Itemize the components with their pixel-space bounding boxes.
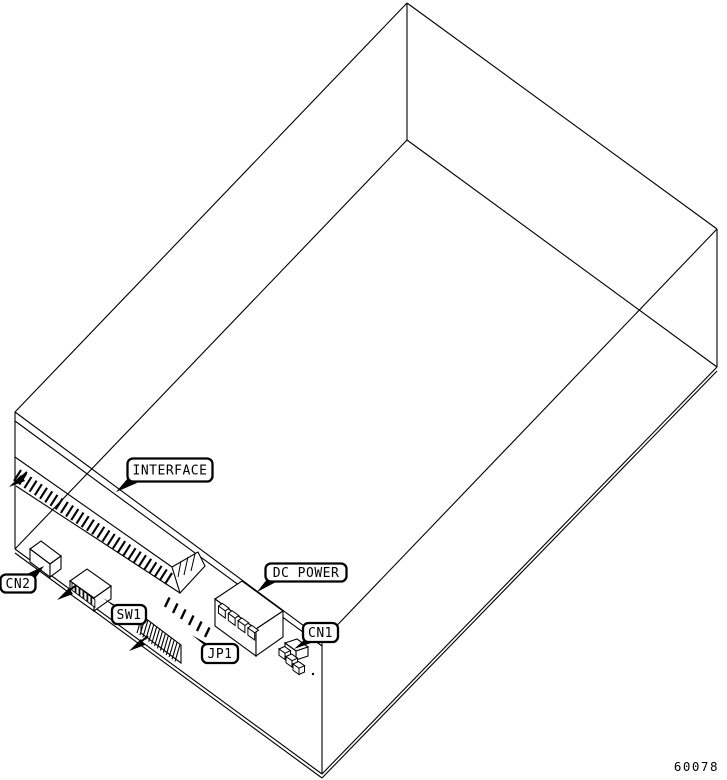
- interface-tooth: [155, 566, 162, 577]
- jp1-pin: [197, 622, 202, 632]
- interface-tooth: [87, 520, 94, 531]
- interface-tooth: [97, 527, 104, 538]
- interface-tooth: [35, 484, 42, 495]
- sw1-toggle: [80, 588, 83, 598]
- cn1-dot: [312, 673, 314, 675]
- callout-cn2: CN2: [1, 566, 45, 593]
- interface-tooth: [165, 573, 172, 584]
- callout-dc-power-label: DC POWER: [273, 566, 340, 581]
- interface-tooth: [50, 495, 57, 506]
- callout-cn2-label: CN2: [6, 577, 31, 592]
- interface-tooth: [76, 513, 83, 524]
- interface-tooth: [160, 569, 167, 580]
- interface-tooth: [61, 502, 68, 513]
- callout-sw1: SW1: [103, 598, 146, 624]
- chassis-top-rear-left-edge: [15, 3, 407, 412]
- chassis-bottom-rear-right-edge: [407, 140, 717, 367]
- chassis-bottom-rear-left-edge: [15, 140, 407, 549]
- interface-tooth: [144, 559, 151, 570]
- chassis-bottom-lip-right-edge: [322, 371, 717, 778]
- jp1-jumper-block: [137, 598, 210, 664]
- sw1-toggle: [84, 591, 87, 601]
- jp1-pin: [189, 616, 194, 626]
- drawing-number: 60078: [674, 759, 719, 774]
- cn1-connector: [279, 639, 314, 675]
- callout-interface-label: INTERFACE: [133, 464, 208, 479]
- jp1-pin: [165, 598, 170, 608]
- cn1-step-pin: [293, 662, 305, 675]
- chassis-wireframe: [15, 3, 717, 778]
- interface-tooth: [134, 552, 141, 563]
- interface-tooth: [92, 523, 99, 534]
- callout-sw1-label: SW1: [117, 608, 142, 623]
- sw1-toggle: [76, 585, 79, 595]
- sw1-toggle: [92, 597, 95, 607]
- jp1-pin: [205, 628, 210, 638]
- diagram-canvas: INTERFACE CN2 SW1 JP1 DC POWER CN1 60078: [0, 0, 727, 780]
- callout-interface: INTERFACE: [116, 459, 213, 493]
- interface-tooth: [30, 481, 37, 492]
- interface-tooth: [129, 548, 136, 559]
- interface-tooth: [24, 477, 31, 488]
- interface-tooth: [66, 506, 73, 517]
- interface-tooth: [118, 541, 125, 552]
- chassis-bottom-front-right-edge: [322, 367, 717, 774]
- interface-tooth: [45, 491, 52, 502]
- callout-cn1-label: CN1: [308, 626, 333, 641]
- jp1-pins: [165, 598, 210, 638]
- interface-tooth: [56, 498, 63, 509]
- chassis-bottom-front-left-edge: [15, 549, 322, 774]
- callout-cn1: CN1: [294, 623, 338, 649]
- interface-tooth: [123, 545, 130, 556]
- sw1-dip-switch: [70, 569, 111, 611]
- callout-dc-power: DC POWER: [257, 564, 347, 593]
- chassis-top-rear-right-edge: [407, 3, 717, 229]
- interface-end-cap: [172, 552, 205, 593]
- interface-tooth: [139, 555, 146, 566]
- interface-tooth: [82, 516, 89, 527]
- interface-tooth: [149, 562, 156, 573]
- chassis-top-front-right-edge: [323, 229, 717, 640]
- interface-tooth: [108, 534, 115, 545]
- interface-tooth: [71, 509, 78, 520]
- jp1-pin: [181, 610, 186, 620]
- interface-tooth: [40, 488, 47, 499]
- sw1-toggle: [88, 594, 91, 604]
- jp1-pin: [173, 604, 178, 614]
- chassis-bottom-lip-left-edge: [15, 553, 322, 778]
- interface-tooth: [113, 537, 120, 548]
- callout-jp1: JP1: [192, 635, 238, 663]
- callout-jp1-label: JP1: [208, 647, 233, 662]
- interface-tooth: [103, 530, 110, 541]
